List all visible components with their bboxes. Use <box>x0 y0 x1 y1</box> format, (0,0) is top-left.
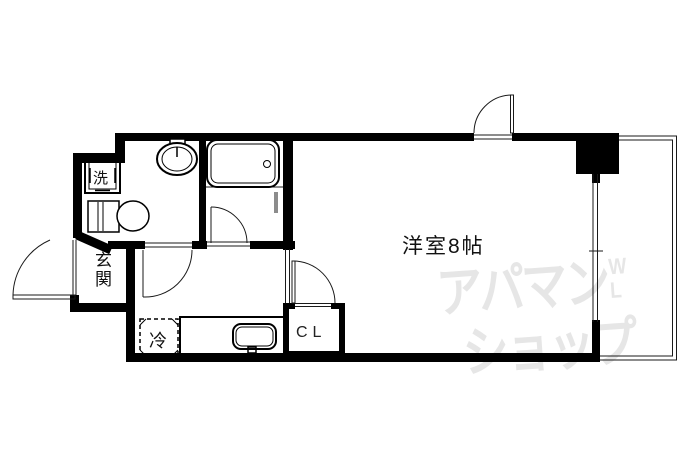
pillar <box>576 133 619 174</box>
north-door-arc <box>474 95 514 133</box>
wash-basin <box>157 139 197 175</box>
window-right <box>589 174 603 322</box>
toilet <box>88 201 149 232</box>
toilet-room-door-arc <box>143 250 192 297</box>
floorplan-drawing <box>0 0 690 460</box>
bathtub <box>207 140 279 187</box>
entrance-label: 玄関 <box>89 251 114 289</box>
diagonal-wall <box>77 235 111 250</box>
floorplan-page: アパマン W L ショップ <box>0 0 690 460</box>
closet-label: CL <box>296 324 326 342</box>
kitchen-counter <box>180 317 283 356</box>
washer-label: 洗 <box>93 167 108 188</box>
main-room-label: 洋室8帖 <box>402 230 485 260</box>
fridge-label: 冷 <box>149 327 167 353</box>
bathroom-door-arc <box>211 207 247 243</box>
main-room-door-arc <box>292 261 335 303</box>
kitchen-sink <box>233 324 276 353</box>
entrance-door-arc <box>13 240 75 299</box>
